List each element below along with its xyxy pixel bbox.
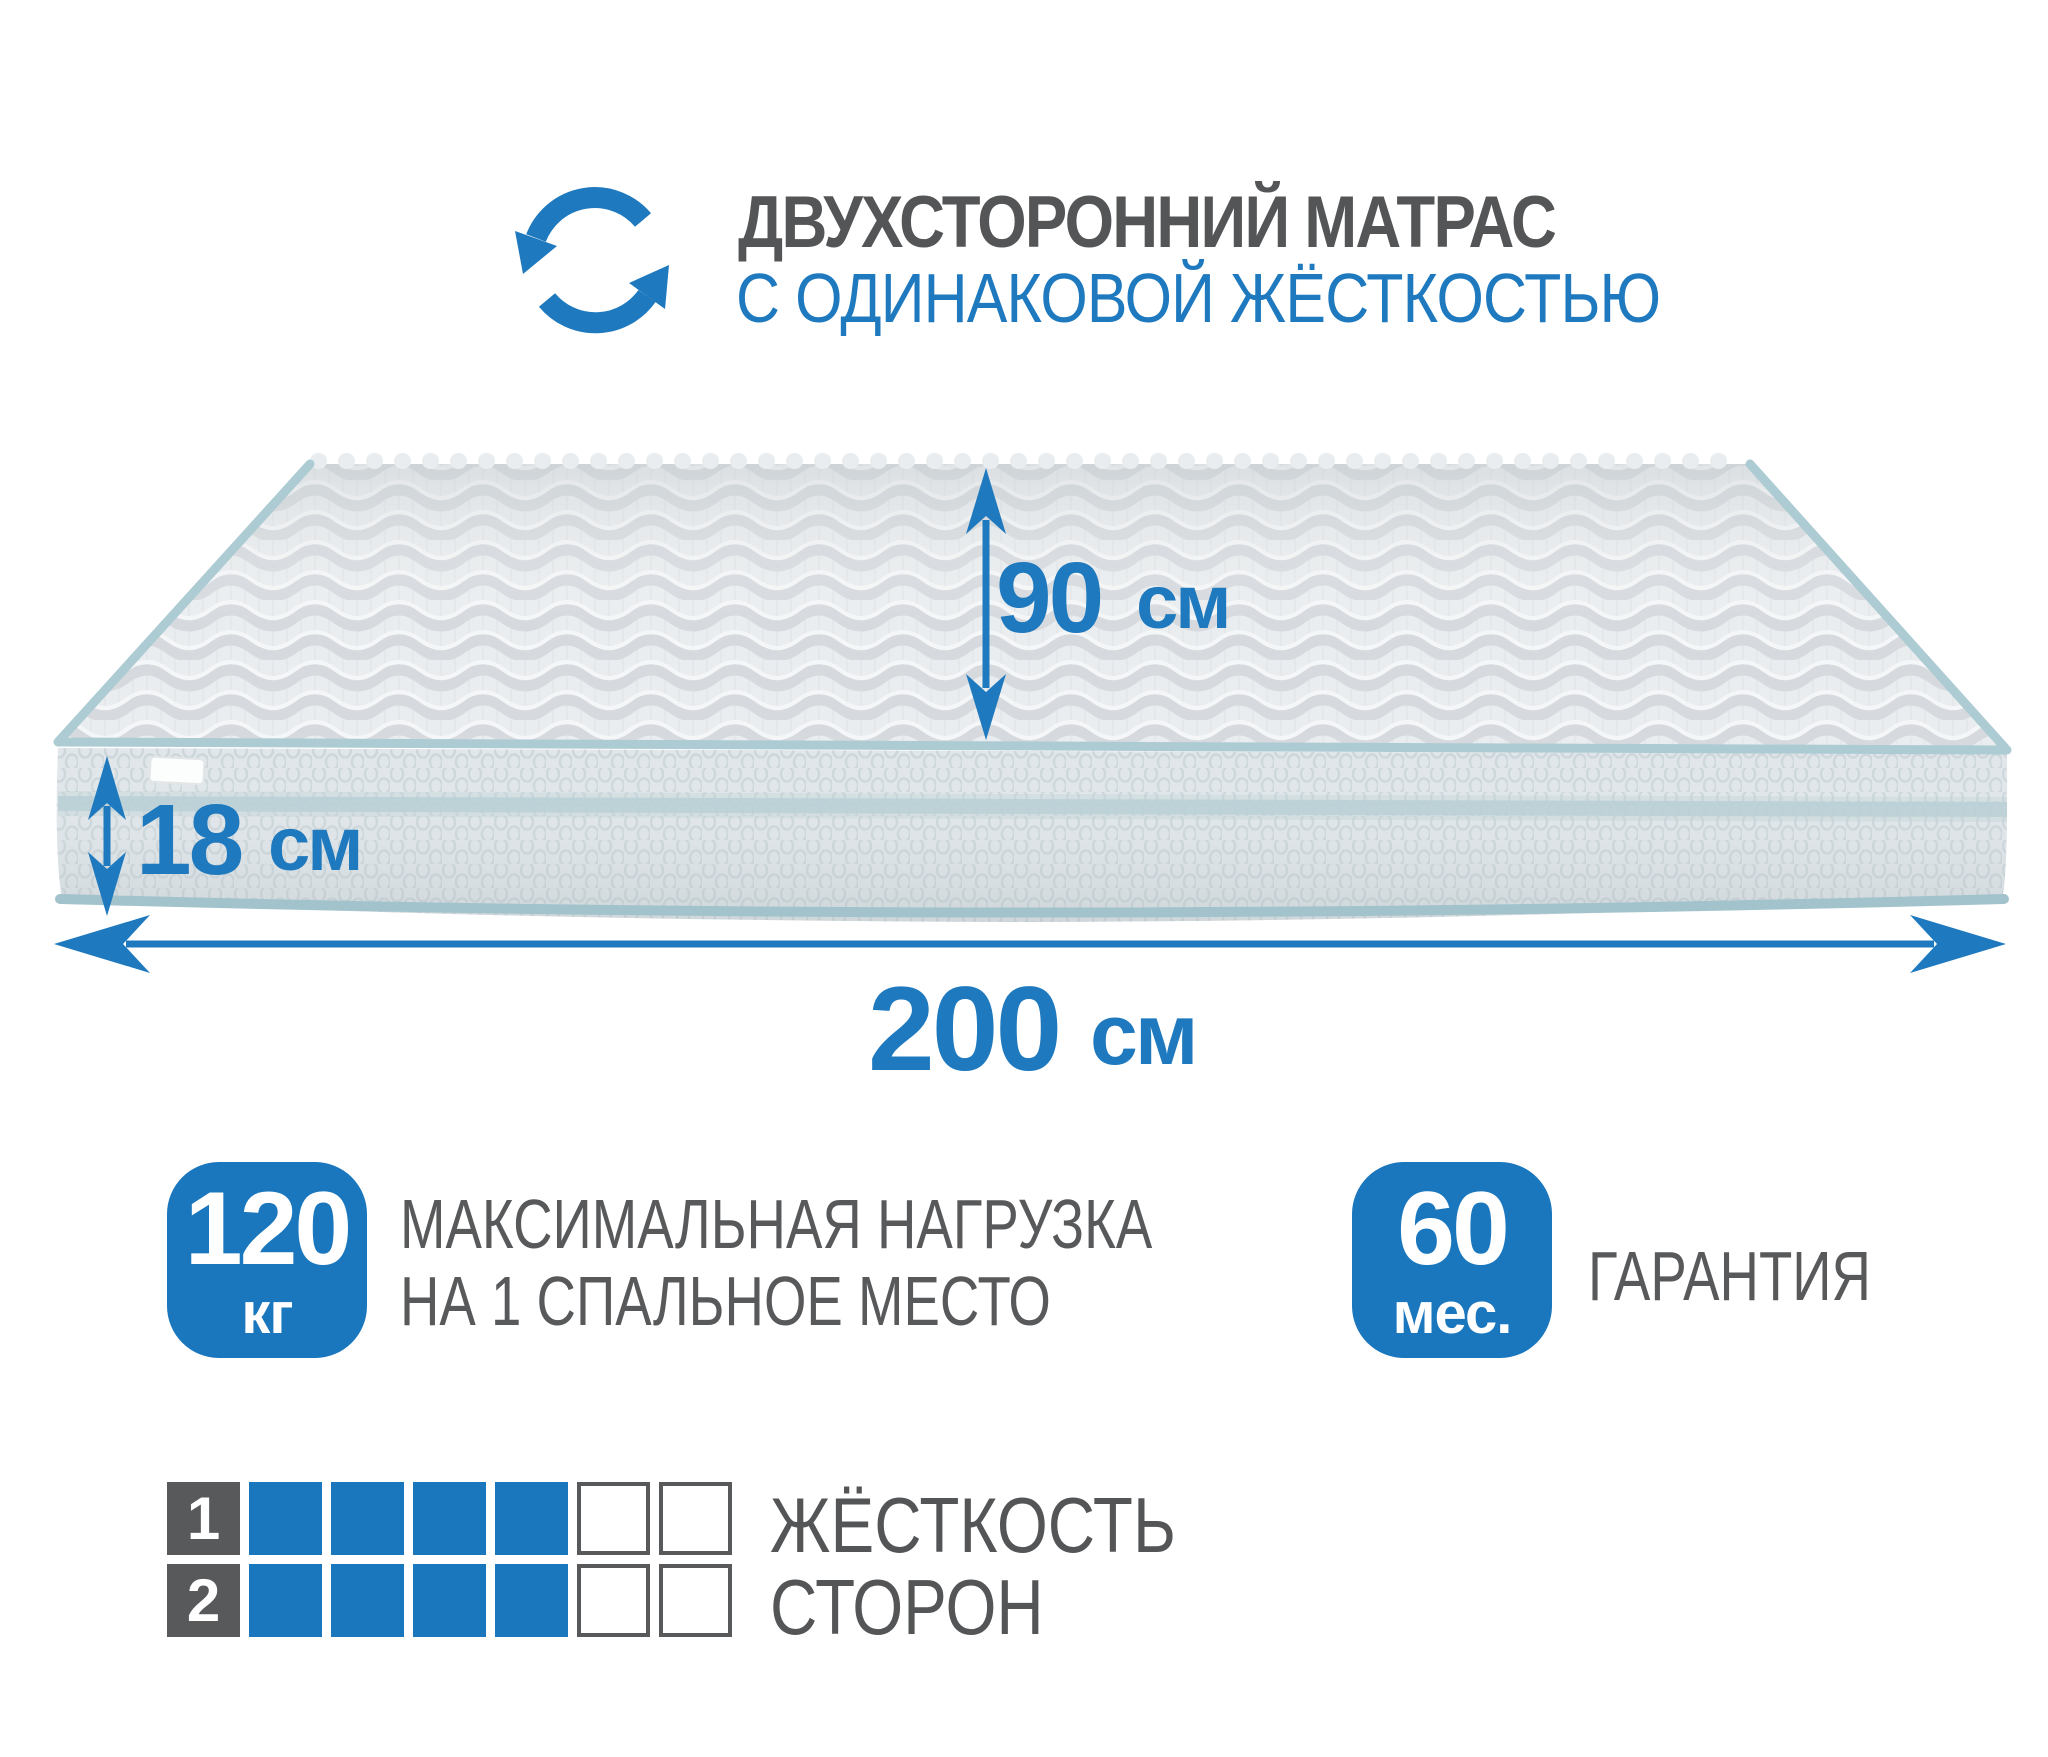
firmness-side-number: 1 <box>167 1482 240 1555</box>
max-load-label-line2: НА 1 СПАЛЬНОЕ МЕСТО <box>400 1263 1152 1340</box>
firmness-filled-square <box>331 1482 404 1555</box>
firmness-squares-side2 <box>249 1564 732 1637</box>
depth-value: 90 <box>996 542 1101 654</box>
firmness-row-side1: 1 <box>167 1482 732 1555</box>
firmness-squares-side1 <box>249 1482 732 1555</box>
max-load-label-line1: МАКСИМАЛЬНАЯ НАГРУЗКА <box>400 1186 1152 1263</box>
depth-unit: см <box>1136 560 1229 645</box>
mattress-label-tag <box>149 757 204 785</box>
max-load-label: МАКСИМАЛЬНАЯ НАГРУЗКА НА 1 СПАЛЬНОЕ МЕСТ… <box>400 1186 1152 1340</box>
firmness-filled-square <box>413 1564 486 1637</box>
height-unit: см <box>268 802 361 887</box>
width-unit: см <box>1090 987 1195 1083</box>
firmness-empty-square <box>577 1482 650 1555</box>
firmness-filled-square <box>495 1564 568 1637</box>
firmness-filled-square <box>331 1564 404 1637</box>
warranty-badge: 60 мес. <box>1352 1162 1552 1358</box>
firmness-label-line2: СТОРОН <box>770 1566 1176 1648</box>
max-load-value: 120 <box>185 1177 350 1281</box>
firmness-empty-square <box>659 1564 732 1637</box>
warranty-value: 60 <box>1397 1177 1507 1281</box>
firmness-filled-square <box>249 1564 322 1637</box>
warranty-unit: мес. <box>1393 1285 1512 1343</box>
firmness-empty-square <box>659 1482 732 1555</box>
firmness-rows: 1 2 <box>167 1482 732 1646</box>
width-value: 200 <box>868 962 1059 1096</box>
firmness-label-line1: ЖЁСТКОСТЬ <box>770 1484 1176 1566</box>
dimension-width: 200 см <box>54 915 2006 1096</box>
height-value: 18 <box>136 784 242 896</box>
firmness-side-number: 2 <box>167 1564 240 1637</box>
warranty-label: ГАРАНТИЯ <box>1588 1238 1871 1315</box>
max-load-unit: кг <box>241 1285 292 1343</box>
firmness-filled-square <box>249 1482 322 1555</box>
max-load-badge: 120 кг <box>167 1162 367 1358</box>
firmness-filled-square <box>413 1482 486 1555</box>
firmness-row-side2: 2 <box>167 1564 732 1637</box>
firmness-filled-square <box>495 1482 568 1555</box>
mattress-infographic: ДВУХСТОРОННИЙ МАТРАС С ОДИНАКОВОЙ ЖЁСТКО… <box>0 0 2048 1757</box>
firmness-empty-square <box>577 1564 650 1637</box>
firmness-labels: ЖЁСТКОСТЬ СТОРОН <box>770 1484 1176 1648</box>
